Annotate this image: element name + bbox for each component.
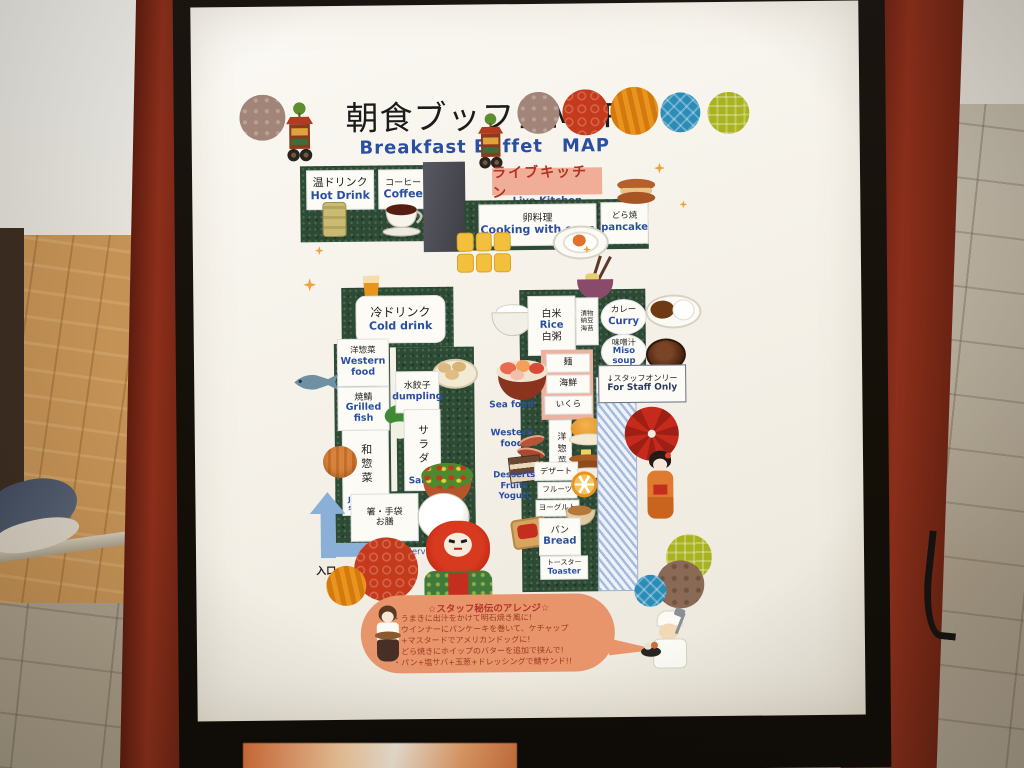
western-food-left-en2: food — [351, 367, 375, 378]
seafood-jp: 海鮮 — [559, 379, 577, 390]
pattern-circle — [707, 92, 749, 134]
fish-icon — [292, 370, 340, 395]
desserts-en: Desserts — [493, 470, 535, 480]
cutlery-jp2: お膳 — [376, 517, 394, 528]
cold-drink-label: 冷ドリンク Cold drink — [355, 295, 445, 344]
pattern-circle — [634, 575, 666, 607]
pattern-circle — [562, 89, 608, 135]
staff-only-label: ↓スタッフオンリー For Staff Only — [598, 364, 686, 403]
pattern-circle — [660, 92, 700, 132]
fried-egg-icon — [553, 225, 605, 256]
bread-jp: パン — [550, 526, 569, 537]
rice-label: 白米 Rice 白粥 — [527, 296, 576, 356]
fruits-en: Fruits — [500, 481, 528, 491]
sparkle-icon — [654, 163, 665, 174]
chef-figure — [639, 610, 696, 671]
pattern-circle — [610, 87, 659, 136]
dumpling-label: 水餃子 dumpling — [395, 371, 439, 413]
dessert-jp: デザート — [540, 466, 572, 476]
pancake-en: pancake — [601, 222, 648, 234]
pickles-label: 漬物 納豆 海苔 — [575, 297, 599, 345]
bread-en: Bread — [543, 536, 576, 548]
noodles-jp: 麺 — [563, 358, 572, 368]
desserts-en-group: Desserts Fruits Yogurt — [489, 470, 539, 502]
toaster-en: Toaster — [548, 567, 581, 577]
pattern-circle — [517, 92, 559, 134]
rice-en: Rice — [540, 320, 564, 332]
cutlery-jp1: 箸・手袋 — [367, 507, 403, 518]
sparkle-icon — [315, 246, 324, 255]
bread-label: パン Bread — [539, 517, 581, 555]
seafood-bowl-icon — [496, 358, 548, 403]
yogurt-en: Yogurt — [499, 491, 531, 501]
cold-drink-jp: 冷ドリンク — [370, 306, 430, 320]
toaster-label: トースター Toaster — [540, 555, 588, 580]
curry-plate-icon — [645, 292, 697, 327]
left-wall — [0, 0, 142, 243]
dumpling-en: dumpling — [392, 392, 442, 403]
japanese-side-dish-jp: 和惣菜 — [359, 431, 372, 496]
dorayaki-icon — [616, 175, 656, 207]
bystander-shoe — [0, 472, 90, 568]
orange-slice-icon — [571, 471, 597, 497]
cold-drink-en: Cold drink — [369, 320, 432, 333]
sparkle-icon — [679, 200, 687, 208]
maiko-figure — [639, 450, 682, 528]
coffee-cup-icon — [378, 195, 424, 237]
curry-en: Curry — [608, 316, 639, 328]
waitress-figure — [373, 605, 404, 669]
onion-icon — [323, 446, 357, 478]
rice-porridge-jp: 白粥 — [542, 331, 562, 343]
staff-tips-lines: ・うまきに出汁をかけて明石焼き風に! ・ウインナーにパンケーキを巻いて、ケチャッ… — [393, 611, 620, 668]
nori-jp: 海苔 — [581, 325, 594, 333]
pattern-circle — [239, 95, 285, 141]
buffet-map-poster: 朝食ブッフェMAP Breakfast Buffet MAP 温ドリンク Hot… — [190, 1, 865, 722]
canned-drink-icon — [322, 202, 346, 237]
doorway-shadow — [0, 228, 24, 510]
western-food-left-label: 洋惣菜 Western food — [337, 338, 389, 387]
ikura-label: いくら — [544, 395, 592, 415]
ramen-icon — [575, 255, 616, 303]
miso-soup-en: Miso soup — [602, 347, 646, 367]
seafood-label: 海鮮 — [546, 374, 590, 393]
cutlery-label: 箸・手袋 お膳 — [350, 493, 418, 542]
grilled-fish-en2: fish — [354, 414, 374, 425]
live-kitchen-banner: ライブキッチン — [492, 167, 602, 195]
photo-of-buffet-map-sign: 朝食ブッフェMAP Breakfast Buffet MAP 温ドリンク Hot… — [0, 0, 1024, 768]
curry-jp: カレー — [611, 306, 637, 316]
noodles-label: 麺 — [546, 353, 590, 372]
sparkle-icon — [303, 278, 316, 291]
staff-only-en: For Staff Only — [607, 383, 677, 394]
rice-jp: 白米 — [541, 308, 561, 320]
festival-float-icon — [281, 101, 318, 163]
ikura-jp: いくら — [556, 400, 582, 410]
pancake-jp: どら焼 — [612, 212, 638, 222]
seafood-en: Sea food — [486, 400, 536, 412]
rice-bowl-icon — [491, 304, 531, 336]
lower-menu-photo — [240, 740, 520, 768]
tamagoyaki-icon — [457, 232, 511, 273]
pattern-circle — [326, 566, 366, 606]
hot-drink-en: Hot Drink — [311, 190, 370, 203]
fruits-jp: フルーツ — [542, 486, 572, 495]
